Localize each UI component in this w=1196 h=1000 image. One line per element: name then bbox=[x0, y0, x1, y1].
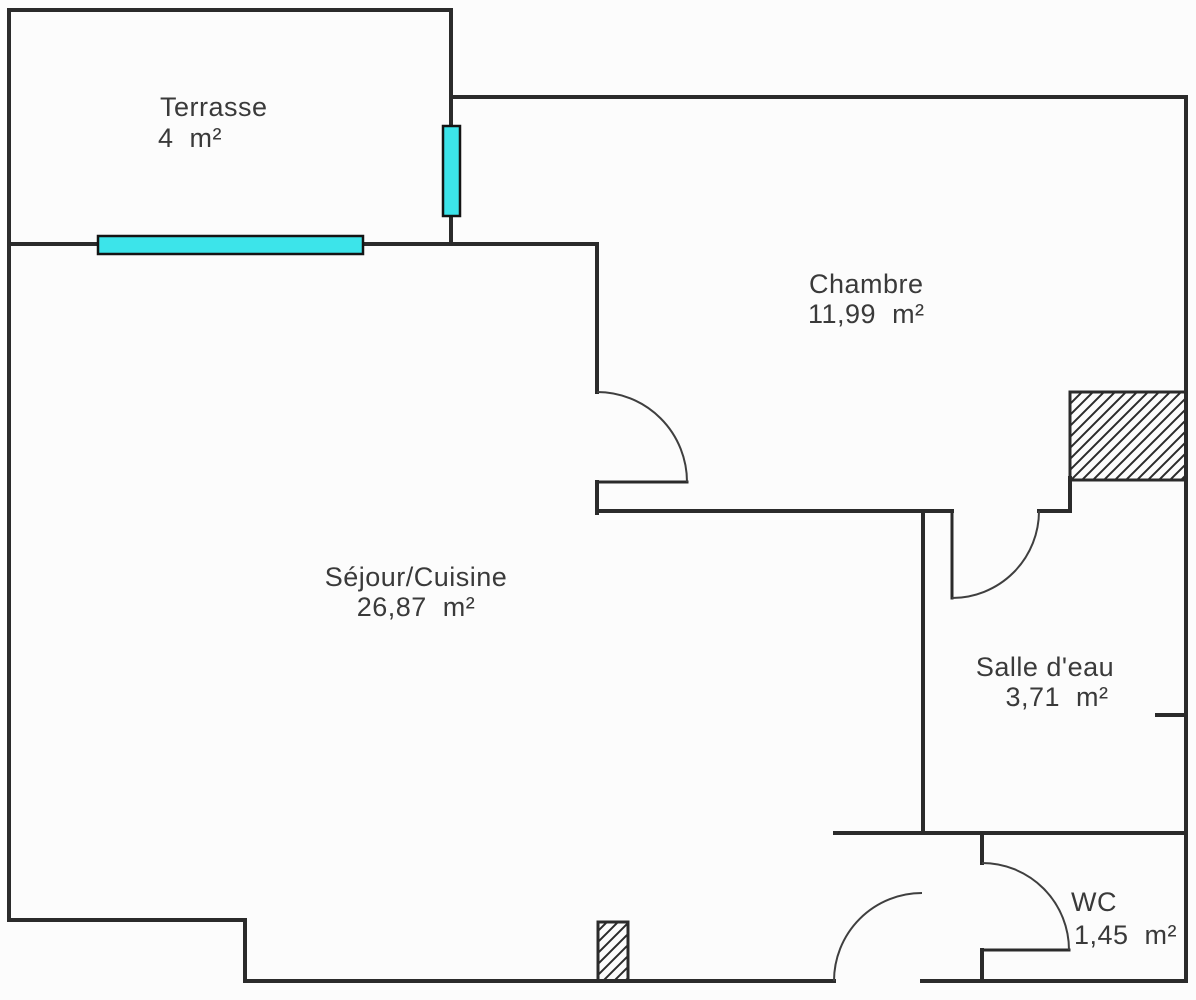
wc-door-arc bbox=[982, 863, 1069, 950]
duct-pillar-bottom bbox=[598, 922, 628, 981]
interior-walls bbox=[9, 244, 1186, 981]
terrace-window-horizontal bbox=[98, 236, 363, 254]
room-area-salle-deau: 3,71 m² bbox=[1005, 684, 1108, 711]
room-area-chambre: 11,99 m² bbox=[808, 301, 925, 328]
room-label-terrasse: Terrasse bbox=[160, 94, 268, 121]
door-arcs bbox=[597, 392, 1069, 981]
room-area-terrasse: 4 m² bbox=[158, 125, 222, 152]
duct-shaft-top-right bbox=[1070, 392, 1186, 480]
room-label-wc: WC bbox=[1071, 889, 1117, 916]
entrance-door-arc bbox=[834, 893, 922, 981]
salle-deau-door-arc bbox=[952, 511, 1039, 598]
room-label-salle-deau: Salle d'eau bbox=[976, 654, 1114, 681]
room-label-sejour-cuisine: Séjour/Cuisine bbox=[325, 564, 508, 591]
door-leaves bbox=[597, 482, 1069, 950]
chambre-door-arc bbox=[597, 392, 687, 482]
terrace-window-vertical bbox=[443, 126, 460, 216]
room-label-chambre: Chambre bbox=[809, 271, 924, 298]
room-area-sejour-cuisine: 26,87 m² bbox=[357, 594, 476, 621]
room-area-wc: 1,45 m² bbox=[1074, 922, 1177, 949]
floor-plan: Terrasse 4 m² Chambre 11,99 m² Séjour/Cu… bbox=[0, 0, 1196, 1000]
